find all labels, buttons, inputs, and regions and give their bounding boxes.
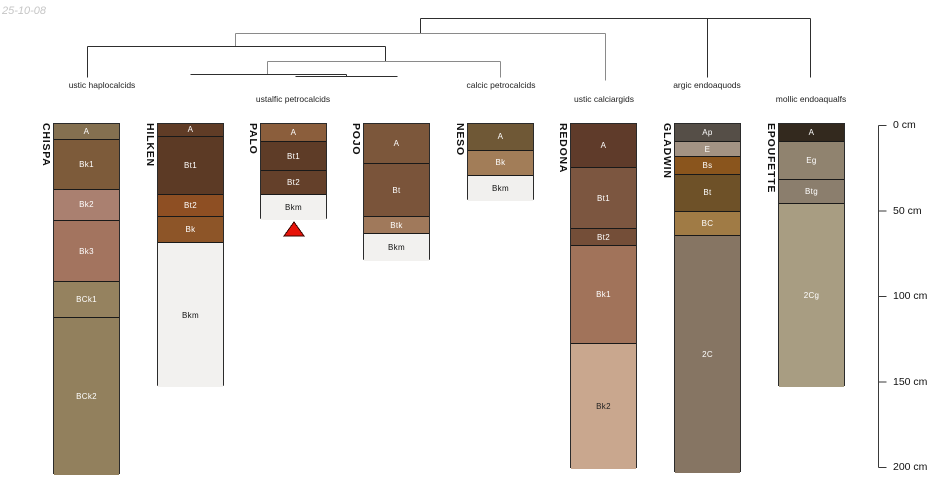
horizon-band-bs: Bs — [675, 156, 740, 173]
taxon-label: ustalfic petrocalcids — [256, 94, 330, 104]
horizon-band-a: A — [571, 124, 636, 167]
horizon-band-btk: Btk — [364, 216, 429, 233]
horizon-band-a: A — [364, 124, 429, 163]
profile-name-label-neso: NESO — [454, 123, 465, 156]
soil-profile-column-chispa: ABk1Bk2Bk3BCk1BCk2 — [53, 123, 120, 474]
horizon-band-eg: Eg — [779, 141, 844, 179]
horizon-band-2cg: 2Cg — [779, 203, 844, 388]
taxon-label: ustic haplocalcids — [69, 80, 136, 90]
soil-profile-column-palo: ABt1Bt2Bkm — [260, 123, 327, 219]
horizon-band-bt: Bt — [364, 163, 429, 216]
horizon-band-bck1: BCk1 — [54, 281, 119, 317]
taxon-label: mollic endoaqualfs — [776, 94, 846, 104]
horizon-band-bt2: Bt2 — [261, 170, 326, 194]
depth-tick-label: 0 cm — [893, 119, 916, 131]
profile-name-label-palo: PALO — [247, 123, 258, 155]
horizon-band-bk: Bk — [158, 216, 223, 242]
taxon-label: ustic calciargids — [574, 94, 634, 104]
profile-name-label-pojo: POJO — [350, 123, 361, 155]
soil-profile-column-epoufette: AEgBtg2Cg — [778, 123, 845, 386]
horizon-band-bt2: Bt2 — [158, 194, 223, 216]
taxon-label: calcic petrocalcids — [467, 80, 536, 90]
horizon-band-bk1: Bk1 — [571, 245, 636, 342]
horizon-band-bkm: Bkm — [158, 242, 223, 387]
horizon-band-btg: Btg — [779, 179, 844, 203]
profile-name-label-chispa: CHISPA — [40, 123, 51, 167]
depth-tick-label: 200 cm — [893, 461, 927, 473]
soil-profile-column-pojo: ABtBtkBkm — [363, 123, 430, 260]
horizon-band-bt1: Bt1 — [571, 167, 636, 229]
horizon-band-bk2: Bk2 — [54, 189, 119, 220]
horizon-band-a: A — [158, 124, 223, 136]
soil-profile-column-hilken: ABt1Bt2BkBkm — [157, 123, 224, 386]
horizon-band-a: A — [779, 124, 844, 141]
profile-name-label-hilken: HILKEN — [144, 123, 155, 167]
horizon-band-bkm: Bkm — [468, 175, 533, 201]
soil-profile-column-neso: ABkBkm — [467, 123, 534, 200]
red-triangle-marker-icon — [284, 222, 304, 236]
horizon-band-a: A — [261, 124, 326, 141]
horizon-band-2c: 2C — [675, 235, 740, 473]
horizon-band-bk3: Bk3 — [54, 220, 119, 282]
profile-name-label-gladwin: GLADWIN — [661, 123, 672, 179]
horizon-band-a: A — [468, 124, 533, 150]
horizon-band-bkm: Bkm — [364, 233, 429, 260]
taxon-label: argic endoaquods — [673, 80, 741, 90]
soil-profile-column-redona: ABt1Bt2Bk1Bk2 — [570, 123, 637, 468]
horizon-band-bkm: Bkm — [261, 194, 326, 220]
horizon-band-bc: BC — [675, 211, 740, 235]
depth-tick-label: 100 cm — [893, 290, 927, 302]
depth-tick-label: 50 cm — [893, 205, 922, 217]
horizon-band-bt2: Bt2 — [571, 228, 636, 245]
horizon-band-bk1: Bk1 — [54, 139, 119, 189]
horizon-band-bt: Bt — [675, 174, 740, 212]
horizon-band-bt1: Bt1 — [158, 136, 223, 194]
horizon-band-bt1: Bt1 — [261, 141, 326, 170]
profile-name-label-epoufette: EPOUFETTE — [765, 123, 776, 193]
horizon-band-a: A — [54, 124, 119, 139]
horizon-band-bck2: BCk2 — [54, 317, 119, 474]
profile-name-label-redona: REDONA — [557, 123, 568, 173]
soil-profile-dendrogram-figure: 25-10-08 0 cm50 cm100 cm150 cm200 cmusti… — [0, 0, 950, 500]
horizon-band-ap: Ap — [675, 124, 740, 141]
horizon-band-bk: Bk — [468, 150, 533, 176]
horizon-band-e: E — [675, 141, 740, 156]
soil-profile-column-gladwin: ApEBsBtBC2C — [674, 123, 741, 472]
depth-tick-label: 150 cm — [893, 376, 927, 388]
horizon-band-bk2: Bk2 — [571, 343, 636, 470]
